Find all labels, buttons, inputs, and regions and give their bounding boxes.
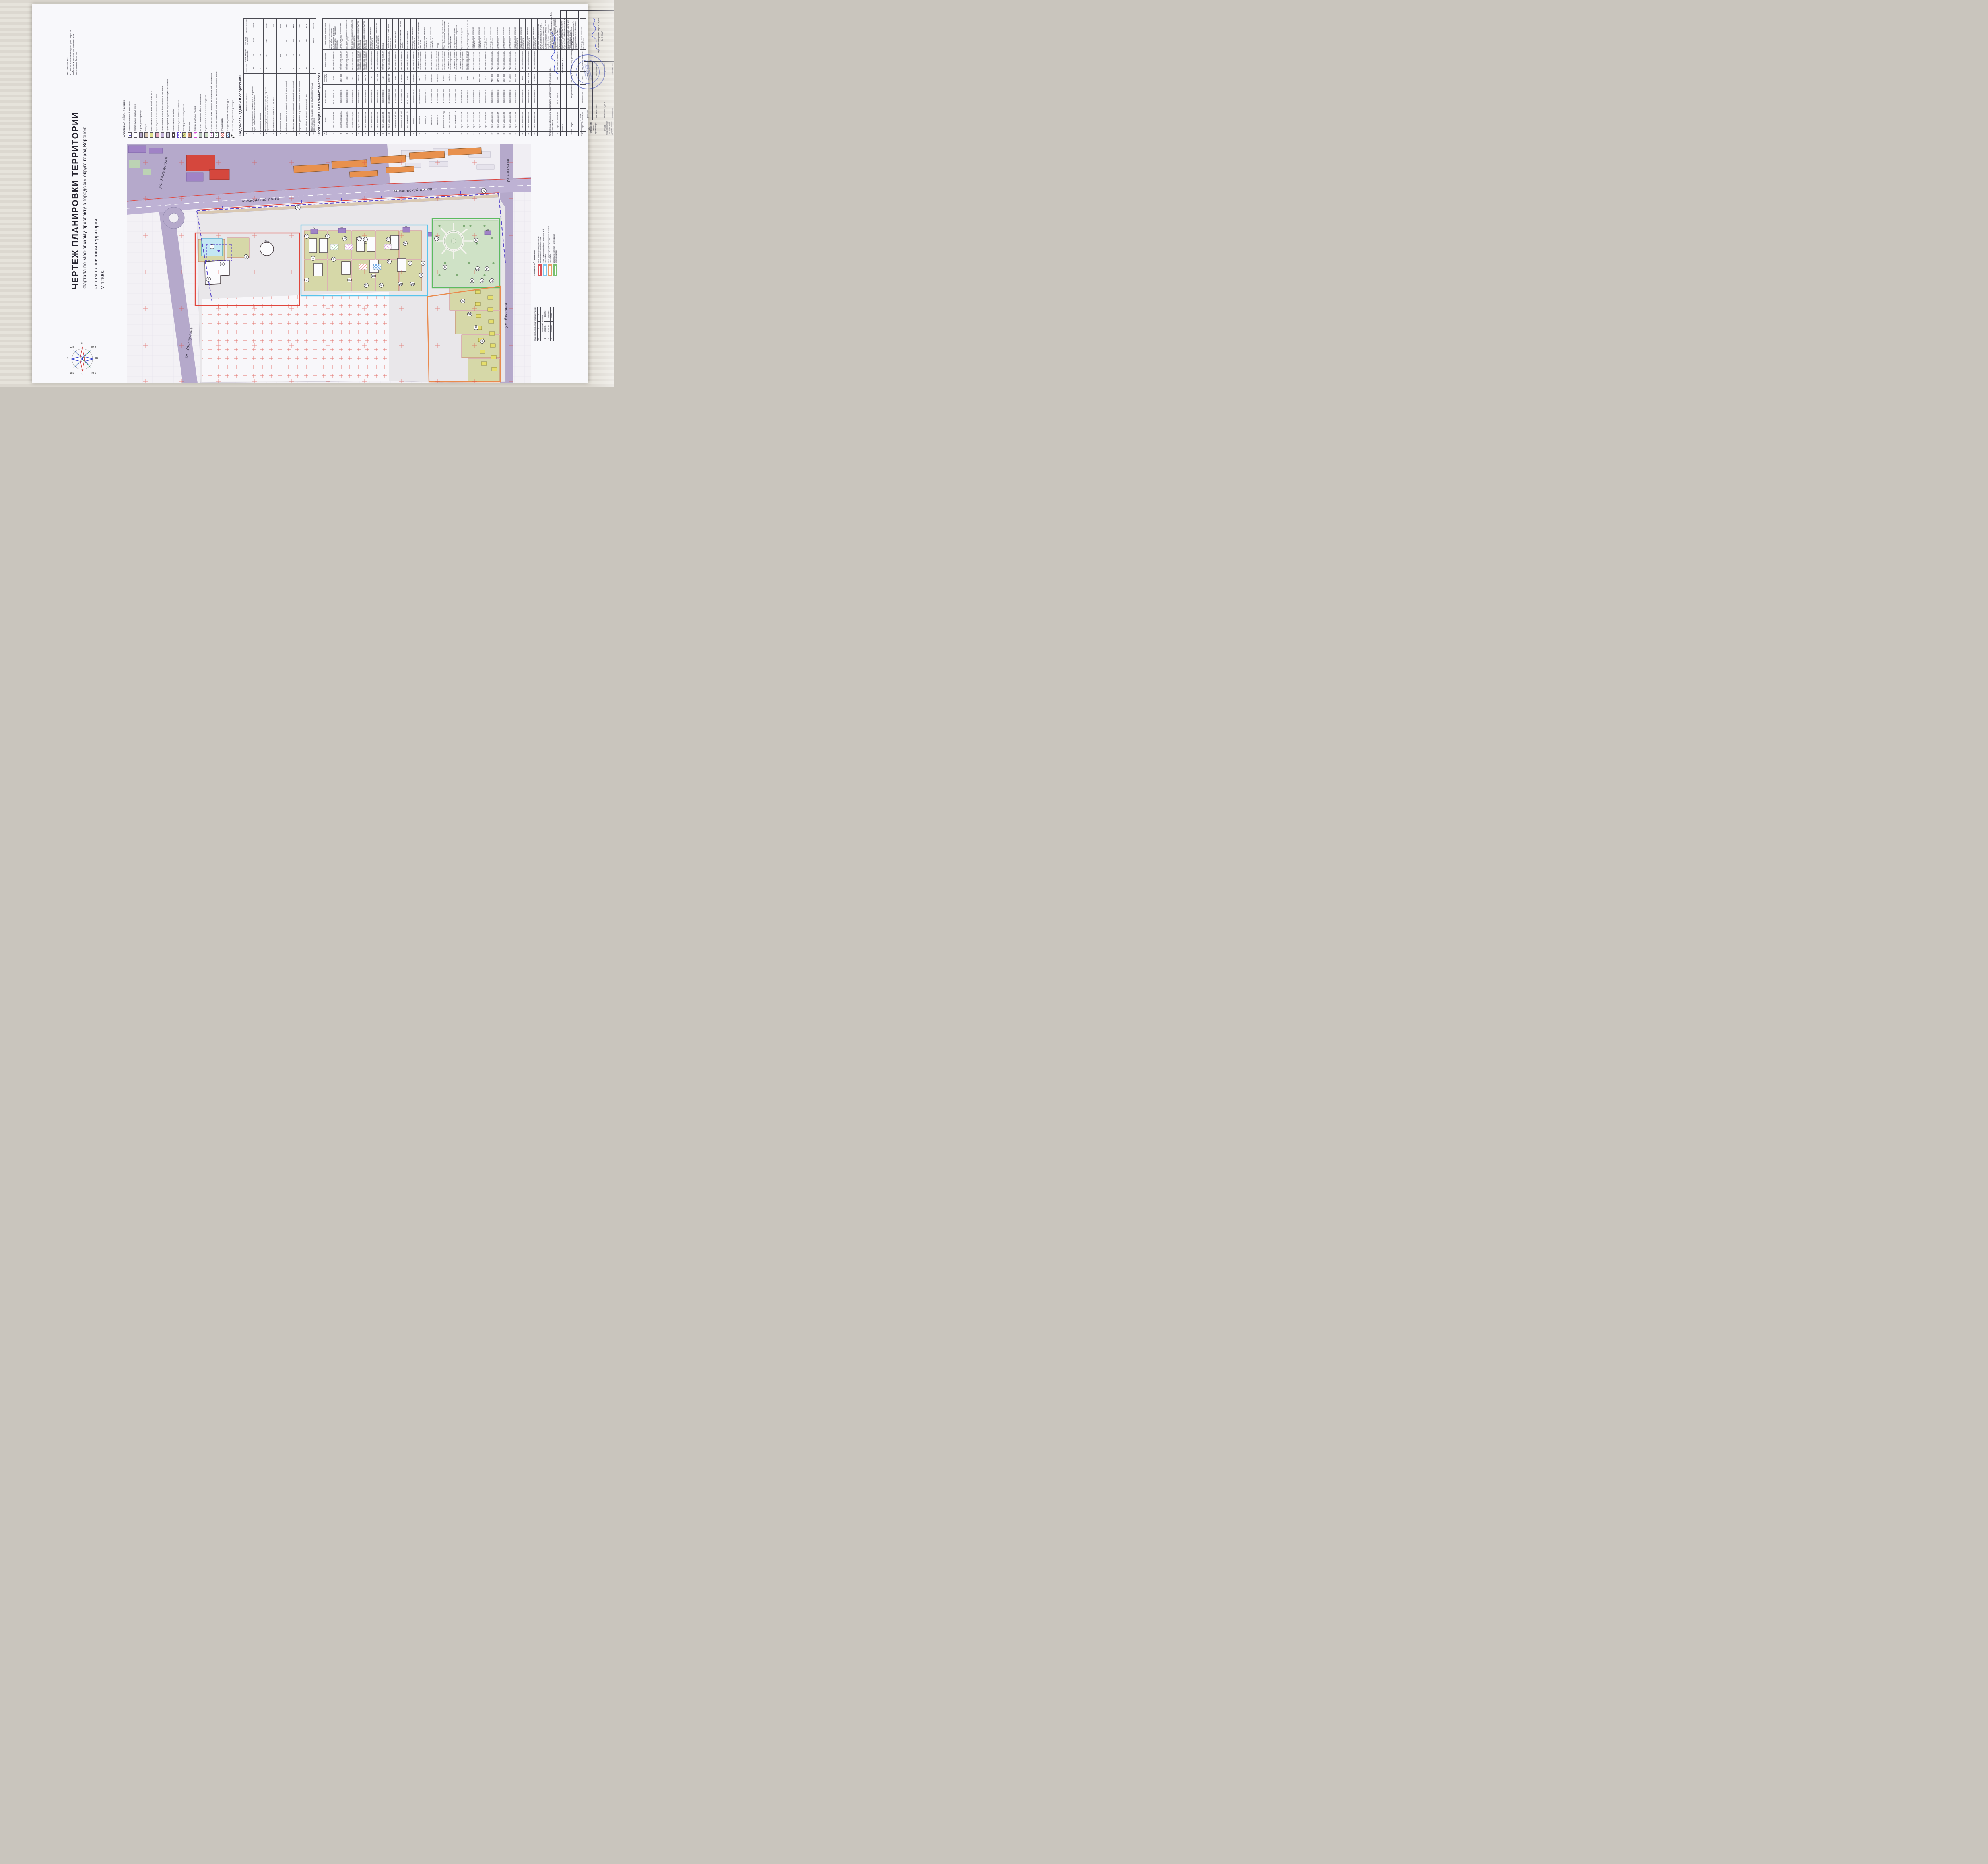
table-row: 1Многоквартирный многоэтажный дом со вст… <box>250 19 257 136</box>
table-row: 10пр-кт Московский,3336:34:0205005:31027… <box>386 19 392 136</box>
legend-item: зеленые насаждения общего пользования <box>198 49 204 138</box>
legend-item: ┻котельная <box>187 49 193 138</box>
plot-number: 16 <box>471 280 474 282</box>
plot-number: 24 <box>404 243 407 245</box>
legend-item: 3границы земельных участков <box>192 49 198 138</box>
stamp-role-row: Начальник отделаГончарова О.В. <box>601 62 610 120</box>
plots-table-title: Экспликация земельных участков <box>317 19 322 136</box>
fill-swatch-icon <box>166 132 170 138</box>
zone-legend-item: зона размещения общественно-деловой заст… <box>542 226 547 276</box>
legend-item: площадка ДДУ <box>220 49 225 138</box>
table-row: 18Беговая,22 а36:34:0205005:126237+/-1.2… <box>435 19 441 136</box>
table-row: 28пр-кт Московский,5736:34:0205005:52647… <box>495 19 501 136</box>
legend-item: внутриквартальные зеленые насаждения <box>204 49 209 138</box>
table-row: 8Офисное здание с 2х уровневой подземной… <box>297 19 303 136</box>
plot-number: 33 <box>462 300 464 303</box>
buildings-table: Ведомость зданий и сооружений №Обозначен… <box>238 19 315 136</box>
territory-plan-map: АА 1234567891011121314151617181920212223… <box>127 144 531 383</box>
plot-number: 31 <box>420 274 423 277</box>
plot-number: 11 <box>348 279 351 282</box>
plot-number: 27 <box>358 238 361 240</box>
drawing-sheet: Приложение №2 к проекту планировки терри… <box>32 4 588 383</box>
plot-number: 34 <box>468 313 471 316</box>
table-row: 5Подземная парковка21236560 <box>277 19 283 136</box>
legend-items: граница планируемой территориипроектируе… <box>127 49 236 138</box>
table-row: 13пр-кт Московский,31/136:34:0205005:122… <box>405 19 411 136</box>
customer-label: Заказчик <box>560 120 566 136</box>
table-row: 32пр-кт Московский,6536:34:0205005:22102… <box>519 19 525 136</box>
legend-item: существующие здания общественного пользо… <box>160 49 165 138</box>
legend-item: граница планируемой территории <box>127 49 133 138</box>
plot-number: 22 <box>387 239 390 241</box>
compass-label: Ю-В <box>91 346 96 348</box>
buildings-table-header: №Обозначение объектаЭтажностьКол-во квар… <box>244 19 250 136</box>
floor-count-label: 9ж <box>340 227 343 229</box>
legend-item: тротуары <box>144 49 149 138</box>
org-name: МКП "Управление главного архитектора" <box>588 121 598 135</box>
table-row: 23пр-кт Московский,3136:34:0205005:11746… <box>465 19 471 136</box>
table-header-row: № п/пАдресКадастровый №Площадь участка, … <box>323 19 329 136</box>
table-row: 15Беговая,2236:34:0205005:308116+/-7Собс… <box>417 19 423 136</box>
table-row: 15062,81-1658,52 <box>544 307 547 341</box>
legend-item: площадки для отдыха взрослого населения … <box>209 49 214 138</box>
hatch-magenta-swatch-icon <box>210 132 214 138</box>
table-row: 1пр-кт Московский,8536:34:0205005:124143… <box>329 19 338 136</box>
fill-swatch-icon <box>139 132 143 138</box>
table-row: 26пр-кт Московский,4736:34:0205005:15673… <box>483 19 489 136</box>
buildings-table-title: Ведомость зданий и сооружений <box>238 19 243 136</box>
legend-item: ϟтрансформаторная подстанция <box>182 49 187 138</box>
coords-table-body: Московский проспект15062,81-1658,5225017… <box>540 307 554 341</box>
compass-rose-icon: С С-В В Ю-В Ю Ю-З З С-З <box>67 344 98 375</box>
fill-swatch-icon <box>161 132 164 138</box>
table-row: 7пр-кт Московский,5536:34:0205005:18758Ч… <box>368 19 374 136</box>
plot-number: 15 <box>476 268 479 270</box>
legend-item: Аостановки общественного транспорта <box>231 49 236 138</box>
boundary-swatch-icon <box>128 132 132 138</box>
floor-count-label: 12эт <box>362 243 367 245</box>
zones-legend-items: зона планируемого размещения многоэтажно… <box>537 226 558 276</box>
red-lines-coordinates-table: Ведомость координат красных линий №XY Мо… <box>534 307 557 341</box>
legend-item: существующие многоэтажные жилые дома <box>154 49 160 138</box>
plot-number: 20 <box>380 285 383 287</box>
zone-swatch-icon <box>538 264 542 276</box>
table-row: 12пр-кт Московский,31б36:34:0205005:1295… <box>398 19 404 136</box>
compass-label: Ю <box>95 357 98 360</box>
compass-label: В <box>81 343 83 345</box>
table-row: 9пр-кт Московский,5336:34:0205005:12148С… <box>381 19 386 136</box>
drawing-name: Чертеж планировки территории <box>93 110 99 289</box>
table-row: 8пр-кт Московский,5336:34:0205005:13755+… <box>375 19 381 136</box>
plots-table-grid: № п/пАдресКадастровый №Площадь участка, … <box>322 18 586 136</box>
table-row: 3пр-кт Московский,89б36:34:0205005:28302… <box>344 19 350 136</box>
zone-legend-item: рекреационная зона с культовыми сооружен… <box>553 226 558 276</box>
street-name-label: ул.Беговая <box>506 159 511 183</box>
legend-item: дороги, улицы, проезды <box>138 49 144 138</box>
table-row: 19пр-кт Московский,31д36:34:0205005:8669… <box>441 19 447 136</box>
bus-stop-letter: А <box>297 206 299 209</box>
table-row: 6Офисное здание с 2х уровневой подземной… <box>283 19 290 136</box>
drawing-title-block: ЧЕРТЕЖ ПЛАНИРОВКИ ТЕРРИТОРИИ квартала по… <box>70 110 111 289</box>
page-title: ЧЕРТЕЖ ПЛАНИРОВКИ ТЕРРИТОРИИ <box>71 110 80 289</box>
table-row: 20пр-кт Московский,3136:34:0205005:12121… <box>447 19 453 136</box>
legend-item: существующие жилые дома малой этажности <box>149 49 155 138</box>
table-row: 9Многофункциональный медицинский центр12… <box>303 19 310 136</box>
zone-legend-item: зона существующей индивидуальной жилой з… <box>547 226 553 276</box>
compass-label: Ю-З <box>91 372 96 375</box>
compass-label: С-В <box>70 346 74 348</box>
plots-table-body: 1пр-кт Московский,8536:34:0205005:124143… <box>329 19 586 136</box>
table-row: 3Многоквартирный многоэтажный дом со вст… <box>264 19 270 136</box>
drawing-scale: М 1:1000 <box>100 110 105 289</box>
compass-label: С-З <box>70 372 74 375</box>
plot-number: 28 <box>344 238 346 240</box>
compass-label: З <box>81 374 83 376</box>
hatch-red-swatch-icon <box>221 132 224 138</box>
legend-item: ▼проектируемые подземные стоянки <box>176 49 182 138</box>
fill-swatch-icon <box>144 132 148 138</box>
plot-number: 35 <box>475 327 478 329</box>
hatch-blue-swatch-icon <box>226 132 230 138</box>
bus-stop-letter: А <box>483 190 485 192</box>
plot-number: 25 <box>365 285 368 287</box>
table-row: 30пр-кт Московский,6136:34:0205005:72991… <box>507 19 513 136</box>
table-row: 17Беговая,22 а36:34:0205005:125563+/-2.8… <box>429 19 435 136</box>
plot-number: 21 <box>364 239 367 241</box>
table-row: 31пр-кт Московский,6336:34:0205005:69800… <box>513 19 519 136</box>
legend-item: существующие здания коммунально-складско… <box>165 49 171 138</box>
object-label: Объект Адрес <box>566 120 578 136</box>
plot-number: 30 <box>411 283 414 285</box>
scanned-photo-background: Приложение №2 к проекту планировки терри… <box>0 0 614 387</box>
doc-title: Чертеж планировки территории <box>598 18 600 54</box>
table-row: 6пр-кт Московский,7136:34:0205005:38135+… <box>362 19 368 136</box>
map-legend: Условные обозначения граница планируемой… <box>122 49 240 138</box>
buildings-table-grid: №Обозначение объектаЭтажностьКол-во квар… <box>243 18 316 136</box>
floor-count-label: 2ж <box>486 229 489 231</box>
table-row: 22пр-кт Московский,4336:34:0205005:3926С… <box>459 19 465 136</box>
table-row: 29пр-кт Московский,5936:34:0205005:58636… <box>501 19 507 136</box>
table-row: 4Встроенно-пристроенное ДДУ 35 мест1375 <box>270 19 277 136</box>
zone-swatch-icon <box>548 264 552 276</box>
doc-scale: М 1:1000 <box>602 31 604 41</box>
plot-number: 12 <box>475 239 478 242</box>
legend-header: Условные обозначения <box>122 49 126 138</box>
table-row: 34пр-кт Московский,8136:34:0205005:73978… <box>532 19 538 136</box>
stamp-role-row: Зам. директораГоловина О.В. <box>593 62 601 120</box>
plotline-swatch-icon: 3 <box>194 132 197 138</box>
tp-swatch-icon: ϟ <box>182 132 186 138</box>
plot-number: 26 <box>409 262 412 265</box>
coords-table-grid: №XY Московский проспект15062,81-1658,522… <box>537 307 554 341</box>
stopA-swatch-icon: А <box>231 134 235 138</box>
plot-number: 13 <box>388 261 391 263</box>
approver-name: Подшивалова Л.А. <box>550 12 553 31</box>
redline-swatch-icon <box>134 132 137 138</box>
table-row: 7Офисное здание с 2х уровневой подземной… <box>290 19 297 136</box>
coords-section-row: Московский проспект <box>540 307 544 341</box>
table-row: 4пр-кт Московский,89б36:34:0205005:29351… <box>350 19 356 136</box>
fill-swatch-icon <box>199 132 202 138</box>
page-subtitle: квартала по Московскому проспекту в горо… <box>83 110 87 289</box>
fill-swatch-icon <box>150 132 153 138</box>
floor-count-label: 5ж <box>405 226 408 228</box>
table-row: 11пр-кт Московский,31в36:34:0205005:3077… <box>392 19 398 136</box>
table-row: 16Беговая,2436:34:0205005:63765+/-10Част… <box>423 19 429 136</box>
zone-legend-item: зона планируемого размещения многоэтажно… <box>537 226 542 276</box>
table-row: 24пр-кт Московский,5136:34:0205005:30735… <box>471 19 477 136</box>
coords-table-title: Ведомость координат красных линий <box>534 307 536 341</box>
compass-label: С <box>67 357 68 360</box>
plot-number: 29 <box>399 283 402 285</box>
plot-number: 10 <box>435 238 438 240</box>
legend-item: проектируемые красные линии <box>133 49 138 138</box>
legend-item: площадки для занятий физкультурой <box>225 49 231 138</box>
plot-number: 23 <box>372 275 375 278</box>
approval-line: Исполняющая обязанности руководителя упр… <box>549 61 554 136</box>
plot-number: 18 <box>491 280 493 282</box>
zones-legend: Условные обозначения зона планируемого р… <box>534 226 560 276</box>
zones-legend-header: Условные обозначения <box>534 226 536 276</box>
legend-item: площадки для игр детей дошкольного и мла… <box>214 49 220 138</box>
plots-table-header: № п/пАдресКадастровый №Площадь участка, … <box>323 19 329 136</box>
table-header-row: №Обозначение объектаЭтажностьКол-во квар… <box>244 19 250 136</box>
table-row: 5пр-кт Московский,7136:34:0205005:36104+… <box>356 19 362 136</box>
table-row: 14Беговая,2236:34:0205005:50623+/-3.10Ча… <box>411 19 417 136</box>
fill-swatch-icon <box>155 132 159 138</box>
table-row: 2пр-кт Московский,89а36:34:0205005:65646… <box>338 19 344 136</box>
proj-swatch-icon <box>172 132 175 138</box>
floor-count-label: 2ж <box>313 227 315 230</box>
land-plots-table: Экспликация земельных участков № п/пАдре… <box>317 19 542 136</box>
table-row: 25017,36-1628,65 <box>547 307 550 341</box>
title-stamp: Исполняющая обязанности руководителя упр… <box>549 10 614 136</box>
hatch-green-swatch-icon <box>215 132 219 138</box>
zone-swatch-icon <box>543 264 547 276</box>
date-line: «___»__________2017г. <box>578 120 584 136</box>
coords-table-header: №XY <box>537 307 540 341</box>
fill-swatch-icon <box>204 132 208 138</box>
table-row: 21пр-кт Московский,37 а36:34:0205005:306… <box>453 19 459 136</box>
zone-swatch-icon <box>553 264 557 276</box>
street-name-label: ул. Беговая <box>504 303 508 328</box>
table-row: 25пр-кт Московский,4936:34:0205005:61733… <box>477 19 483 136</box>
plot-number: 19 <box>444 266 447 269</box>
table-row: 33пр-кт Московский,7936:34:0205005:68136… <box>525 19 531 136</box>
plot-number: 14 <box>486 268 489 270</box>
table-row: 2Подземная парковка198 <box>257 19 264 136</box>
dept-name: Отдел предпроектной и проектной документ… <box>604 121 613 135</box>
plot-number: 36 <box>481 340 484 343</box>
legend-item: проектируемая застройка <box>171 49 177 138</box>
customer-value: ИП Рогатнев В.П. <box>560 10 566 120</box>
appendix-corner-note: Приложение №2 к проекту планировки терри… <box>67 15 80 75</box>
buildings-table-body: 1Многоквартирный многоэтажный дом со вст… <box>250 19 316 136</box>
plot-number: 17 <box>481 280 483 282</box>
plot-number: 32 <box>422 262 425 265</box>
table-row: 34608,09-1597,76 <box>551 307 554 341</box>
stamp-role-row: АрхитекторВеличко А.В. <box>609 62 614 120</box>
floor-count-label: 21эт <box>264 240 269 243</box>
table-row: 27пр-кт Московский,4536:34:0205005:71749… <box>489 19 495 136</box>
underground-swatch-icon: ▼ <box>177 132 181 138</box>
table-row: 10Мастерские по обработке камня с админи… <box>310 19 316 136</box>
boiler-swatch-icon: ┻ <box>188 132 192 138</box>
